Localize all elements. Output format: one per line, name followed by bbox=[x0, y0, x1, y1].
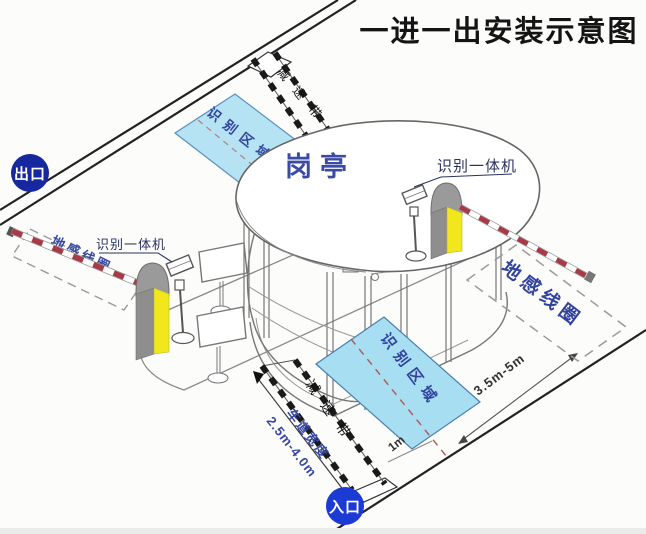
speed-bump-entrance-topcap bbox=[262, 360, 295, 366]
sign-board-lower bbox=[197, 307, 246, 383]
bottom-edge-strip bbox=[0, 528, 646, 534]
booth-door-knob bbox=[372, 274, 379, 281]
sign-board-lower-base bbox=[208, 373, 228, 383]
camera-exit-base bbox=[172, 333, 194, 344]
barrier-post-exit-front bbox=[154, 288, 169, 354]
exit-badge: 出口 bbox=[11, 154, 49, 192]
coil-distance-label: 3.5m-5m bbox=[471, 350, 528, 398]
sign-board-upper bbox=[199, 243, 247, 316]
booth-label: 岗亭 bbox=[285, 151, 355, 182]
barrier-post-entrance-front bbox=[447, 207, 462, 253]
installation-diagram: 识别区域 减速带 地感线圈 识别一体机 bbox=[0, 0, 646, 534]
barrier-post-exit-side bbox=[136, 288, 154, 360]
sign-board-upper-panel bbox=[199, 243, 247, 282]
recognition-area-entrance: 识别区域 1m bbox=[316, 317, 480, 462]
camera-exit-head bbox=[166, 255, 193, 276]
sign-board-lower-panel bbox=[197, 307, 246, 347]
ground-coil-entrance: 地感线圈 bbox=[467, 245, 626, 361]
exit-badge-label: 出口 bbox=[14, 165, 46, 183]
camera-label-entrance-text: 识别一体机 bbox=[437, 158, 517, 175]
camera-entrance-base bbox=[406, 251, 426, 261]
camera-exit-bracket bbox=[175, 280, 184, 290]
camera-entrance-bracket bbox=[410, 207, 418, 216]
barrier-post-entrance-side bbox=[431, 207, 447, 259]
entrance-badge-label: 入口 bbox=[329, 499, 361, 516]
lane-width-dimension: 车道宽度 2.5m-4.0m bbox=[253, 371, 348, 496]
camera-exit-pole bbox=[180, 290, 183, 333]
camera-label-exit-text: 识别一体机 bbox=[96, 237, 166, 252]
lane-width-arrow bbox=[253, 371, 264, 384]
coil-distance-dimension: 3.5m-5m bbox=[458, 350, 578, 444]
camera-exit bbox=[166, 255, 194, 343]
page-title: 一进一出安装示意图 bbox=[359, 14, 638, 48]
booth-glass-mullion bbox=[248, 286, 364, 340]
entrance-badge: 入口 bbox=[326, 487, 364, 525]
